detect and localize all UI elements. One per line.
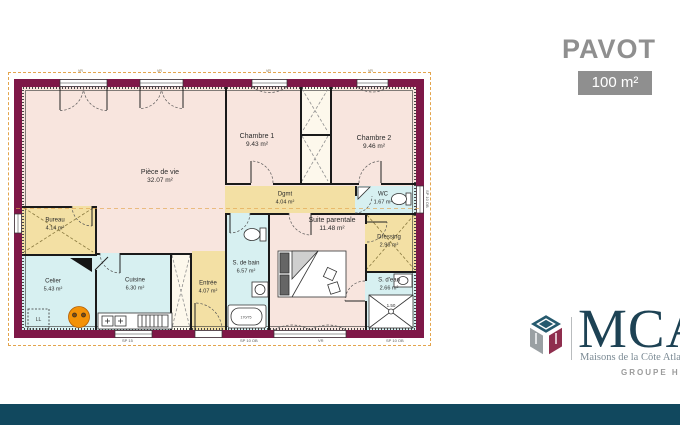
shower-icon (369, 295, 413, 328)
room-label-s-de-bain: S. de bain 6.57 m² (232, 261, 259, 276)
bathtub-size-label: 170/75 (241, 316, 252, 320)
group-label: GROUPE HEXAOM (621, 368, 680, 377)
room-label-dgmt: Dgmt 4.04 m² (276, 192, 295, 207)
washer-label: LL (36, 317, 42, 323)
toilet-icon (244, 228, 266, 241)
shower-width-label: 1.50 (387, 303, 396, 308)
window-mark-3: VR (266, 69, 271, 73)
mca-cube-logo-icon (523, 311, 569, 368)
floorplan-drawing: LL 170/75 1.50 (14, 79, 424, 338)
bottom-dim-2: SP 10 OB (240, 338, 258, 343)
plan-model-title: PAVOT (562, 34, 656, 65)
right-dim: SP 10 OB (425, 190, 430, 208)
bottom-dim-1: SP 15 (122, 338, 133, 343)
room-label-s-deau: S. d'eau 2.66 m² (378, 278, 400, 293)
floorplan: LL 170/75 1.50 (14, 79, 424, 338)
bottom-dim-3: VR (318, 338, 324, 343)
room-label-wc: WC 1.67 m² (374, 192, 393, 207)
room-label-suite-parentale: Suite parentale 11.48 m² (308, 216, 355, 234)
water-heater-icon (69, 307, 90, 328)
footer-bar (0, 404, 680, 425)
kitchen-counter-icon (98, 313, 172, 329)
logo-divider (571, 317, 572, 360)
bottom-dim-4: SP 10 OB (386, 338, 404, 343)
window-mark-2: VR (157, 69, 162, 73)
room-label-piece-de-vie: Pièce de vie 32.07 m² (141, 168, 179, 186)
bed-icon (278, 251, 346, 297)
room-label-chambre-1: Chambre 1 9.43 m² (240, 132, 275, 150)
room-label-bureau: Bureau 4.14 m² (45, 218, 64, 233)
room-label-cuisine: Cuisine 6.30 m² (125, 278, 145, 293)
window-mark-4: VR (368, 69, 373, 73)
plan-area-badge: 100 m² (578, 71, 652, 95)
mca-tagline: Maisons de la Côte Atlantique (580, 352, 680, 363)
room-label-dressing: Dressing 2.96 m² (377, 235, 401, 250)
mca-logo-text: MCA (578, 297, 680, 360)
room-label-celier: Celier 5.43 m² (44, 279, 63, 294)
window-mark-1: VR (78, 69, 83, 73)
sink-icon (252, 282, 268, 297)
room-label-chambre-2: Chambre 2 9.46 m² (357, 134, 392, 152)
room-label-entree: Entrée 4.07 m² (199, 281, 218, 296)
